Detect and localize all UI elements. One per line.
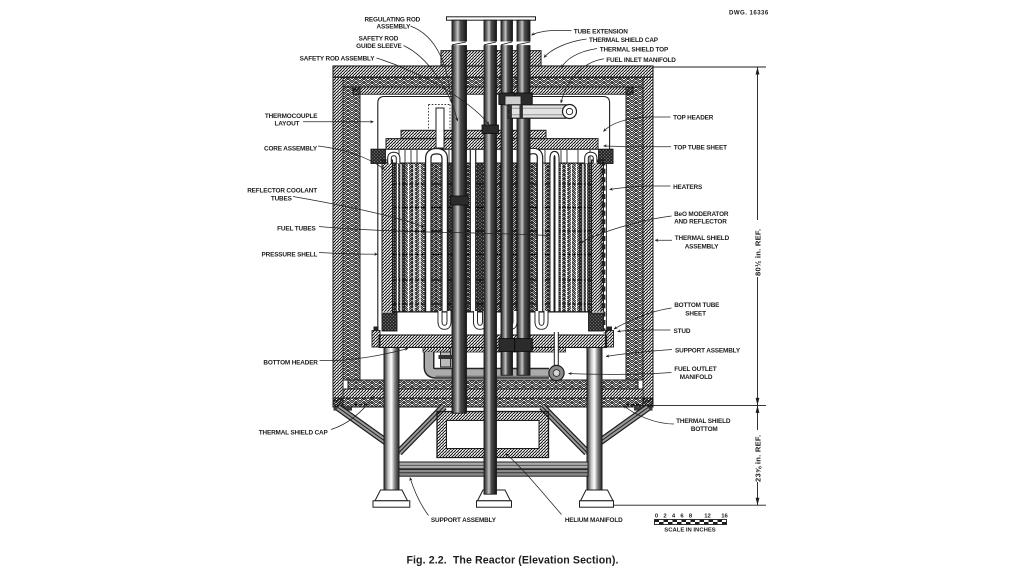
svg-text:23⅝ in. REF.: 23⅝ in. REF. — [753, 435, 762, 482]
svg-text:TUBE EXTENSION: TUBE EXTENSION — [574, 29, 629, 36]
svg-text:HELIUM MANIFOLD: HELIUM MANIFOLD — [565, 517, 623, 524]
svg-text:BeO MODERATOR: BeO MODERATOR — [674, 211, 729, 218]
svg-text:THERMAL SHIELD: THERMAL SHIELD — [675, 235, 730, 242]
svg-text:CORE ASSEMBLY: CORE ASSEMBLY — [264, 146, 318, 153]
svg-text:TOP HEADER: TOP HEADER — [673, 115, 714, 122]
svg-text:TUBES: TUBES — [271, 195, 293, 202]
svg-text:Fig. 2.2. The Reactor (Elevat: Fig. 2.2. The Reactor (Elevation Section… — [406, 555, 618, 567]
svg-text:12: 12 — [704, 514, 711, 520]
svg-text:ASSEMBLY: ASSEMBLY — [377, 24, 412, 31]
svg-text:REGULATING ROD: REGULATING ROD — [364, 16, 420, 23]
svg-text:16: 16 — [721, 514, 728, 520]
svg-text:ASSEMBLY: ASSEMBLY — [685, 243, 720, 250]
svg-text:FUEL OUTLET: FUEL OUTLET — [674, 366, 717, 373]
svg-text:BOTTOM HEADER: BOTTOM HEADER — [263, 360, 318, 367]
svg-text:THERMAL SHIELD TOP: THERMAL SHIELD TOP — [600, 47, 669, 54]
svg-text:PRESSURE SHELL: PRESSURE SHELL — [262, 252, 318, 259]
svg-text:THERMOCOUPLE: THERMOCOUPLE — [265, 113, 318, 120]
svg-text:STUD: STUD — [674, 328, 691, 335]
svg-text:GUIDE SLEEVE: GUIDE SLEEVE — [356, 43, 402, 50]
svg-text:SAFETY ROD: SAFETY ROD — [359, 36, 399, 43]
svg-text:AND REFLECTOR: AND REFLECTOR — [674, 218, 727, 225]
svg-text:HEATERS: HEATERS — [673, 184, 703, 191]
svg-text:SUPPORT ASSEMBLY: SUPPORT ASSEMBLY — [431, 517, 497, 524]
svg-text:SCALE IN INCHES: SCALE IN INCHES — [664, 528, 715, 534]
svg-text:TOP TUBE SHEET: TOP TUBE SHEET — [674, 145, 727, 152]
svg-text:SUPPORT ASSEMBLY: SUPPORT ASSEMBLY — [675, 348, 741, 355]
svg-text:MANIFOLD: MANIFOLD — [680, 374, 713, 381]
svg-text:REFLECTOR COOLANT: REFLECTOR COOLANT — [247, 188, 317, 195]
svg-text:THERMAL SHIELD CAP: THERMAL SHIELD CAP — [589, 37, 659, 44]
svg-text:SHEET: SHEET — [685, 310, 706, 317]
svg-text:SAFETY ROD ASSEMBLY: SAFETY ROD ASSEMBLY — [300, 55, 376, 62]
svg-text:DWG. 16336: DWG. 16336 — [729, 9, 769, 16]
svg-text:THERMAL SHIELD CAP: THERMAL SHIELD CAP — [259, 430, 329, 437]
svg-text:BOTTOM: BOTTOM — [691, 426, 718, 433]
svg-text:FUEL TUBES: FUEL TUBES — [277, 226, 316, 233]
svg-text:FUEL INLET MANIFOLD: FUEL INLET MANIFOLD — [606, 57, 676, 64]
svg-text:BOTTOM TUBE: BOTTOM TUBE — [674, 302, 720, 309]
svg-text:LAYOUT: LAYOUT — [275, 120, 300, 127]
svg-text:THERMAL SHIELD: THERMAL SHIELD — [676, 418, 731, 425]
svg-text:80½ in. REF.: 80½ in. REF. — [753, 229, 762, 276]
